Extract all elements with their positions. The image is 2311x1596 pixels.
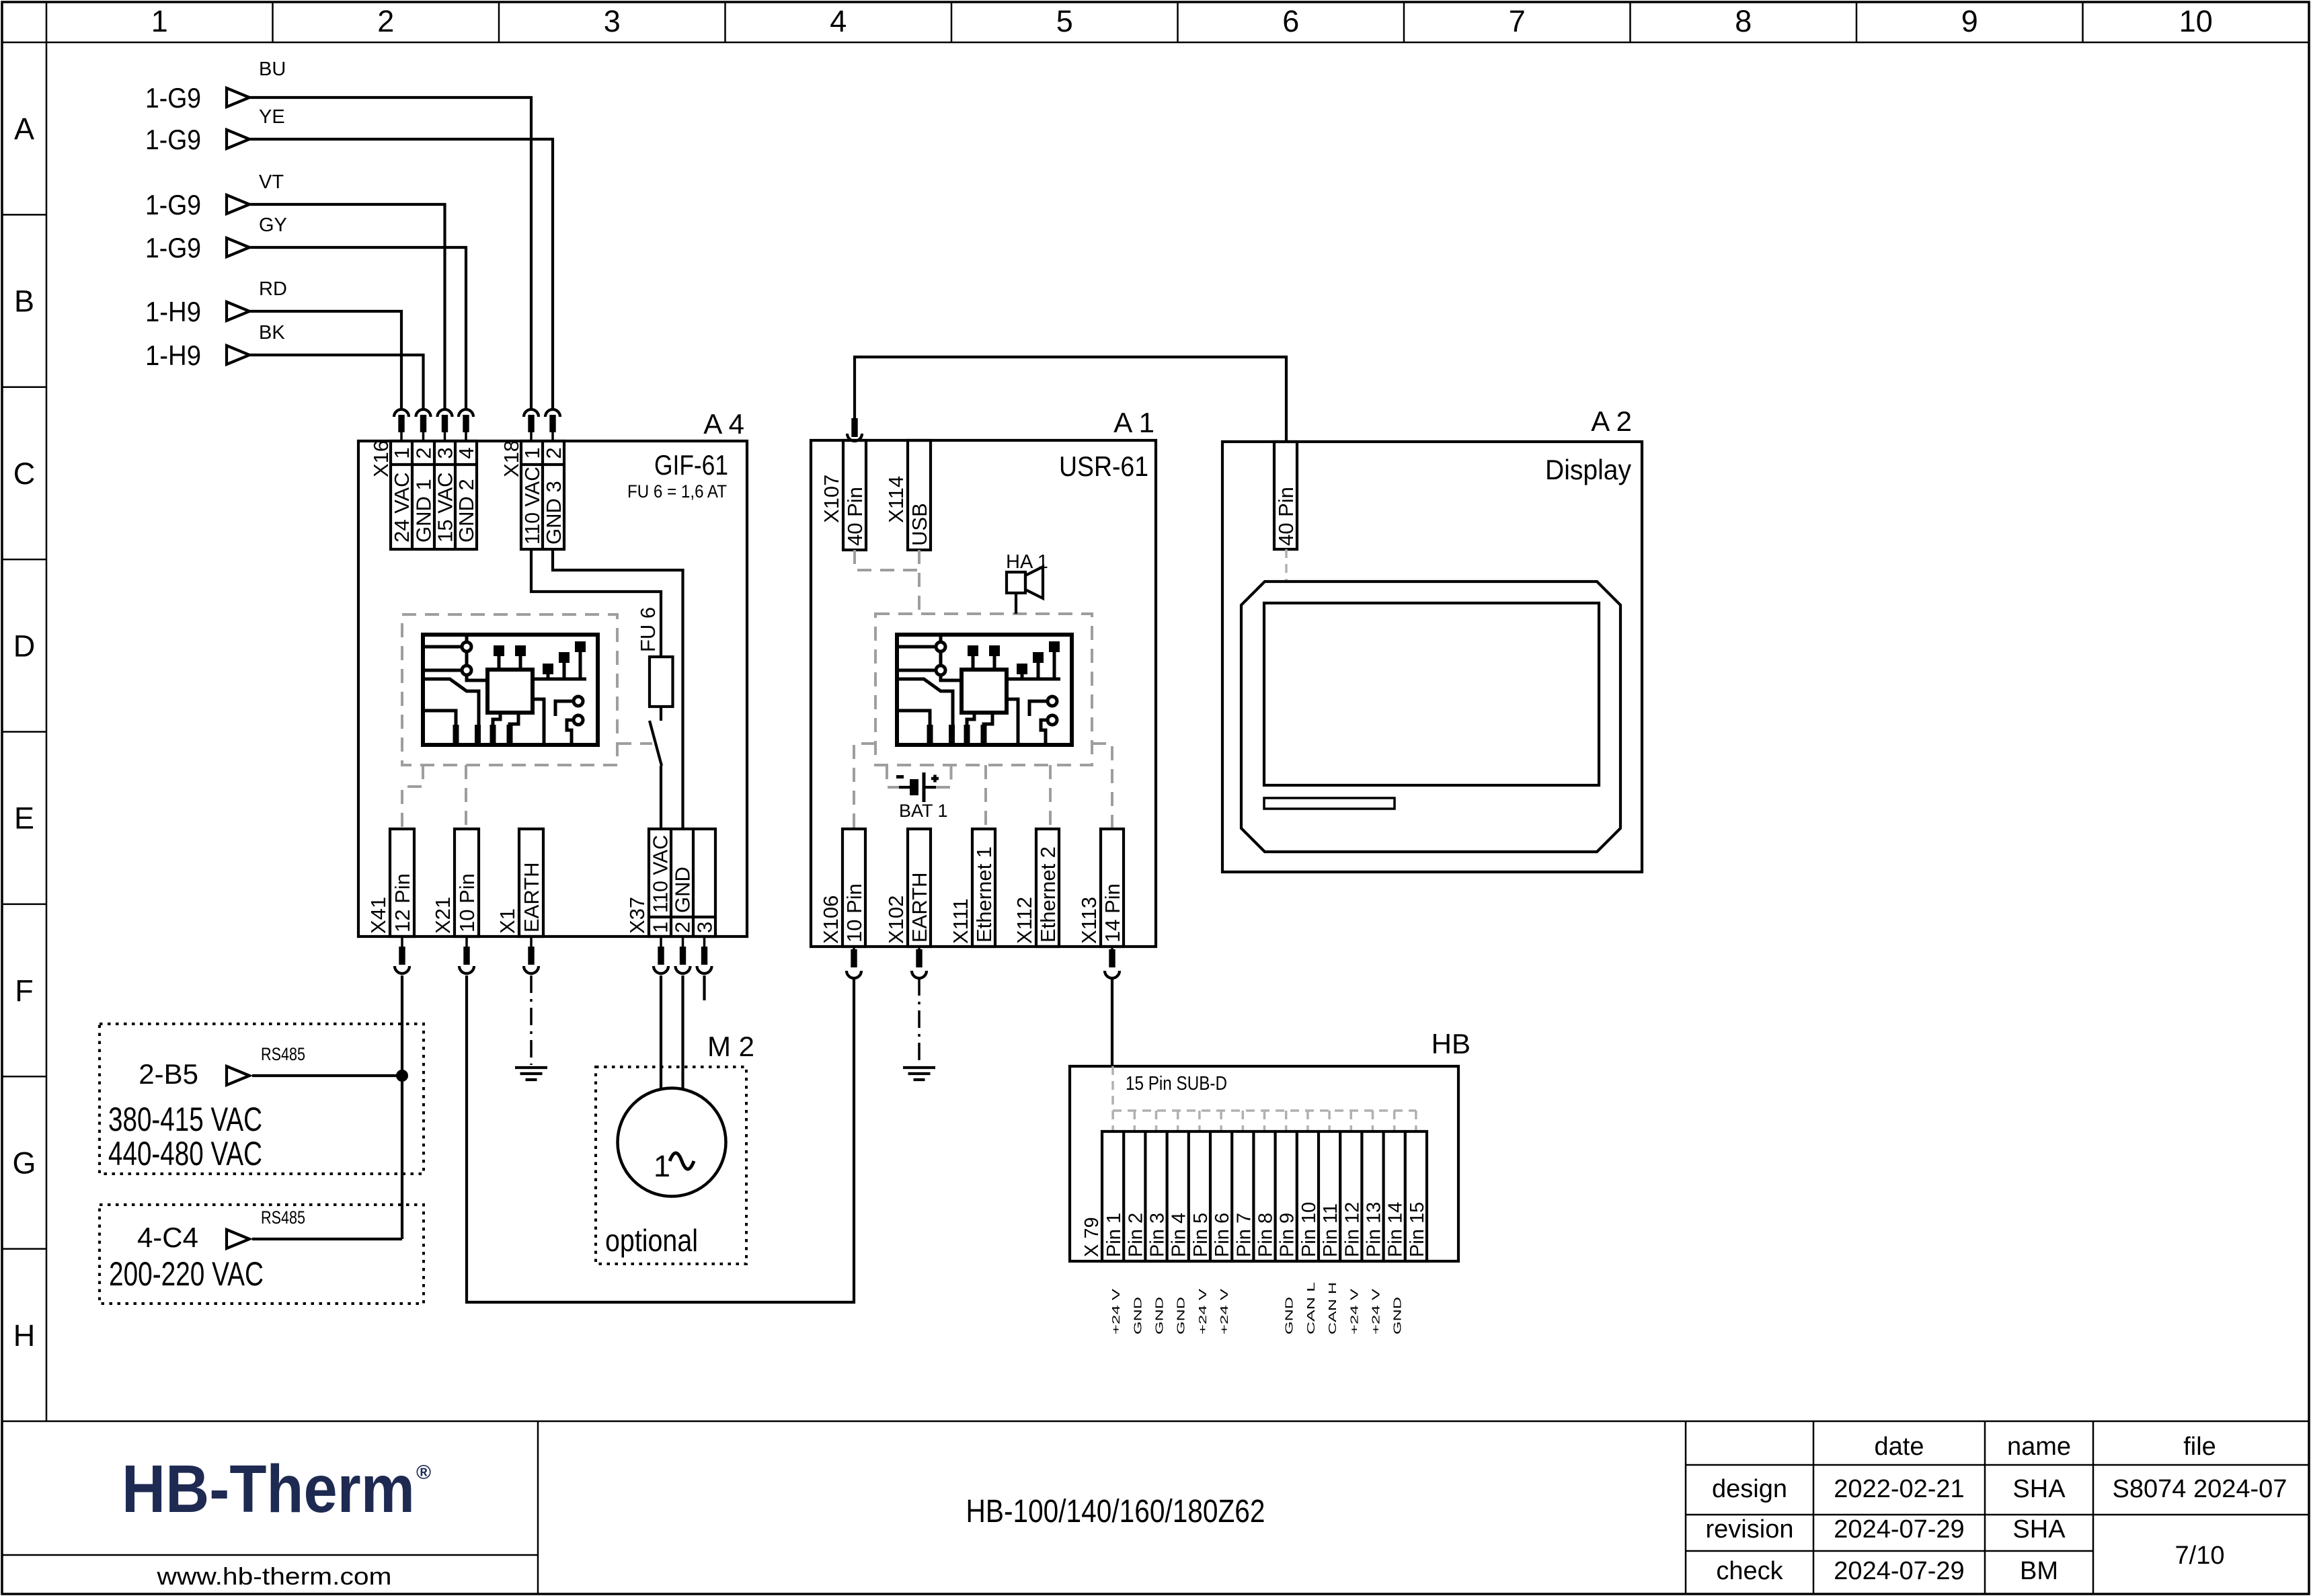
svg-text:X114: X114 xyxy=(884,476,908,523)
svg-text:380-415 VAC: 380-415 VAC xyxy=(108,1101,262,1138)
svg-text:GND: GND xyxy=(1284,1297,1296,1334)
svg-text:+24 V: +24 V xyxy=(1371,1288,1382,1334)
svg-text:VT: VT xyxy=(259,171,284,193)
svg-text:CAN H: CAN H xyxy=(1327,1282,1339,1334)
svg-text:1-H9: 1-H9 xyxy=(145,340,201,371)
svg-text:F: F xyxy=(15,973,34,1008)
svg-text:Pin 11: Pin 11 xyxy=(1320,1203,1341,1257)
svg-text:SHA: SHA xyxy=(2012,1475,2066,1503)
svg-text:revision: revision xyxy=(1706,1515,1794,1544)
svg-text:Pin 9: Pin 9 xyxy=(1277,1213,1298,1257)
svg-text:2: 2 xyxy=(412,447,436,458)
svg-text:C: C xyxy=(13,456,36,491)
svg-text:2024-07-29: 2024-07-29 xyxy=(1834,1515,1964,1544)
svg-text:4: 4 xyxy=(830,4,847,38)
svg-text:3: 3 xyxy=(434,447,457,458)
svg-text:Pin 1: Pin 1 xyxy=(1103,1213,1125,1257)
svg-text:X102: X102 xyxy=(884,895,908,944)
svg-text:1: 1 xyxy=(649,922,672,933)
svg-text:A 4: A 4 xyxy=(703,408,744,440)
svg-text:Pin 7: Pin 7 xyxy=(1233,1213,1255,1257)
svg-text:Pin 15: Pin 15 xyxy=(1407,1202,1428,1257)
svg-text:H: H xyxy=(13,1318,36,1353)
svg-text:BAT 1: BAT 1 xyxy=(899,801,948,821)
svg-text:2024-07-29: 2024-07-29 xyxy=(1834,1557,1964,1585)
svg-text:HA 1: HA 1 xyxy=(1006,551,1048,573)
svg-text:GND: GND xyxy=(671,867,695,913)
svg-text:3: 3 xyxy=(604,4,621,38)
svg-text:110 VAC: 110 VAC xyxy=(520,467,544,545)
svg-text:A 1: A 1 xyxy=(1113,407,1154,438)
svg-text:8: 8 xyxy=(1735,4,1752,38)
svg-text:S8074 2024-07: S8074 2024-07 xyxy=(2113,1475,2287,1503)
svg-text:110 VAC: 110 VAC xyxy=(649,835,672,913)
svg-text:GY: GY xyxy=(259,214,287,236)
svg-text:FU 6: FU 6 xyxy=(636,607,660,652)
svg-text:40 Pin: 40 Pin xyxy=(843,487,867,546)
svg-text:15 VAC: 15 VAC xyxy=(434,472,457,543)
svg-text:X111: X111 xyxy=(949,898,972,944)
svg-text:7: 7 xyxy=(1509,4,1526,38)
svg-text:+24 V: +24 V xyxy=(1349,1288,1360,1334)
svg-text:HB-100/140/160/180Z62: HB-100/140/160/180Z62 xyxy=(966,1494,1265,1529)
svg-text:1-H9: 1-H9 xyxy=(145,296,201,327)
svg-text:X1: X1 xyxy=(496,908,519,934)
svg-text:10 Pin: 10 Pin xyxy=(455,873,479,932)
svg-text:BK: BK xyxy=(259,322,285,344)
svg-text:1-G9: 1-G9 xyxy=(145,82,201,114)
svg-text:Pin 8: Pin 8 xyxy=(1255,1213,1277,1257)
svg-text:24 VAC: 24 VAC xyxy=(390,472,414,543)
svg-text:1: 1 xyxy=(654,1149,670,1183)
svg-text:HB: HB xyxy=(1432,1028,1471,1060)
svg-text:USR-61: USR-61 xyxy=(1059,450,1148,482)
svg-text:4: 4 xyxy=(455,447,478,458)
svg-text:B: B xyxy=(14,284,34,319)
svg-text:+24 V: +24 V xyxy=(1219,1288,1230,1334)
svg-text:GND 1: GND 1 xyxy=(412,479,436,543)
svg-text:SHA: SHA xyxy=(2012,1515,2066,1544)
svg-text:YE: YE xyxy=(259,106,285,128)
svg-text:1-G9: 1-G9 xyxy=(145,124,201,155)
svg-text:GND 3: GND 3 xyxy=(542,481,565,545)
svg-text:RD: RD xyxy=(259,278,287,300)
svg-text:X41: X41 xyxy=(366,897,390,934)
svg-text:X21: X21 xyxy=(431,897,455,934)
svg-text:X 79: X 79 xyxy=(1081,1217,1103,1257)
svg-text:Pin 10: Pin 10 xyxy=(1298,1202,1320,1257)
svg-text:40 Pin: 40 Pin xyxy=(1274,487,1298,546)
svg-text:Pin 14: Pin 14 xyxy=(1385,1202,1407,1257)
svg-text:®: ® xyxy=(416,1462,431,1484)
svg-text:2: 2 xyxy=(542,447,565,458)
svg-text:X112: X112 xyxy=(1013,897,1036,944)
svg-text:1-G9: 1-G9 xyxy=(145,189,201,221)
svg-text:check: check xyxy=(1716,1557,1783,1585)
svg-text:Pin 2: Pin 2 xyxy=(1125,1213,1146,1257)
svg-text:Pin 5: Pin 5 xyxy=(1190,1213,1212,1257)
svg-text:Display: Display xyxy=(1545,454,1631,485)
svg-text:GND 2: GND 2 xyxy=(455,479,478,543)
svg-text:Pin 6: Pin 6 xyxy=(1212,1213,1233,1257)
svg-text:1: 1 xyxy=(520,447,544,458)
svg-text:A: A xyxy=(14,112,34,146)
svg-text:EARTH: EARTH xyxy=(908,872,931,943)
svg-text:RS485: RS485 xyxy=(261,1207,305,1228)
svg-text:12 Pin: 12 Pin xyxy=(391,873,414,932)
svg-text:1-G9: 1-G9 xyxy=(145,232,201,264)
svg-text:5: 5 xyxy=(1056,4,1073,38)
svg-text:Pin 13: Pin 13 xyxy=(1364,1202,1385,1257)
svg-text:date: date xyxy=(1875,1433,1924,1461)
svg-text:D: D xyxy=(13,629,36,663)
svg-text:Ethernet 2: Ethernet 2 xyxy=(1036,846,1060,943)
svg-text:X16: X16 xyxy=(369,440,393,477)
svg-text:CAN L: CAN L xyxy=(1306,1282,1317,1334)
svg-text:E: E xyxy=(14,801,34,836)
svg-text:name: name xyxy=(2007,1433,2071,1461)
svg-text:optional: optional xyxy=(605,1223,698,1258)
svg-text:G: G xyxy=(12,1146,36,1180)
svg-text:GND: GND xyxy=(1176,1297,1187,1334)
svg-text:X107: X107 xyxy=(820,475,843,523)
svg-text:7/10: 7/10 xyxy=(2175,1542,2225,1570)
svg-text:BM: BM xyxy=(2020,1557,2058,1585)
svg-text:Ethernet 1: Ethernet 1 xyxy=(972,846,996,943)
svg-text:GIF-61: GIF-61 xyxy=(654,449,728,481)
svg-text:EARTH: EARTH xyxy=(520,862,543,932)
svg-text:M 2: M 2 xyxy=(707,1031,754,1062)
svg-text:9: 9 xyxy=(1961,4,1978,38)
svg-text:GND: GND xyxy=(1154,1297,1166,1334)
svg-text:FU 6 = 1,6 AT: FU 6 = 1,6 AT xyxy=(627,481,727,502)
svg-text:6: 6 xyxy=(1282,4,1299,38)
svg-text:200-220 VAC: 200-220 VAC xyxy=(109,1255,264,1293)
svg-text:10: 10 xyxy=(2179,4,2213,38)
svg-text:Pin 12: Pin 12 xyxy=(1341,1202,1363,1257)
svg-text:X18: X18 xyxy=(500,440,523,477)
svg-text:3: 3 xyxy=(693,922,717,933)
svg-text:4-C4: 4-C4 xyxy=(137,1222,198,1253)
svg-text:+24 V: +24 V xyxy=(1111,1288,1122,1334)
svg-text:design: design xyxy=(1712,1475,1787,1503)
svg-text:2: 2 xyxy=(377,4,394,38)
svg-text:Pin 3: Pin 3 xyxy=(1147,1213,1169,1257)
svg-text:15 Pin SUB-D: 15 Pin SUB-D xyxy=(1126,1073,1227,1094)
svg-text:14 Pin: 14 Pin xyxy=(1101,883,1124,943)
svg-text:1: 1 xyxy=(390,447,414,458)
svg-text:BU: BU xyxy=(259,58,286,80)
svg-text:GND: GND xyxy=(1132,1297,1144,1334)
svg-text:2: 2 xyxy=(671,922,695,933)
svg-text:+24 V: +24 V xyxy=(1198,1288,1209,1334)
svg-text:HB-Therm: HB-Therm xyxy=(122,1451,415,1527)
svg-text:1: 1 xyxy=(151,4,168,38)
svg-text:GND: GND xyxy=(1393,1297,1404,1334)
svg-text:A 2: A 2 xyxy=(1591,405,1632,437)
svg-text:RS485: RS485 xyxy=(261,1044,305,1064)
svg-text:X37: X37 xyxy=(625,897,649,934)
svg-text:2022-02-21: 2022-02-21 xyxy=(1834,1475,1964,1503)
svg-text:USB: USB xyxy=(908,503,931,546)
svg-text:www.hb-therm.com: www.hb-therm.com xyxy=(156,1562,391,1590)
svg-text:10 Pin: 10 Pin xyxy=(843,883,866,943)
svg-text:X113: X113 xyxy=(1077,897,1101,944)
svg-text:Pin 4: Pin 4 xyxy=(1169,1213,1190,1257)
svg-text:2-B5: 2-B5 xyxy=(139,1058,198,1090)
svg-text:440-480 VAC: 440-480 VAC xyxy=(108,1135,262,1172)
svg-text:X106: X106 xyxy=(819,895,843,944)
svg-text:file: file xyxy=(2183,1433,2216,1461)
